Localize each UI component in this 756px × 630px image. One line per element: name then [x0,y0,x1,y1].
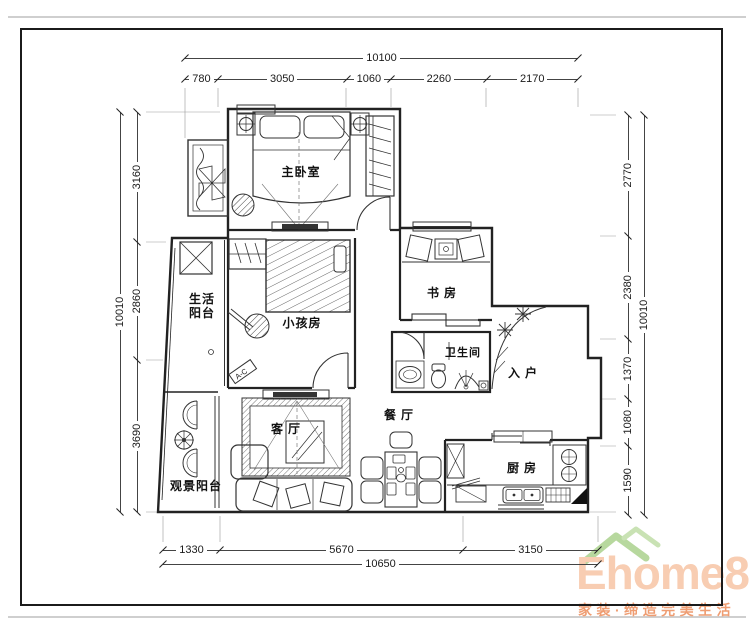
dim-value: 780 [189,73,213,85]
dim-value: 10100 [363,52,400,64]
room-label-kitchen: 厨房 [507,461,541,475]
sofa [236,478,352,511]
room-label-master-bedroom: 主卧室 [281,165,320,179]
bay-window [188,140,228,216]
dim-value: 1060 [354,73,384,85]
toilet [432,370,446,388]
bay-plant [199,166,225,200]
ac-label: A-C [233,366,249,381]
floor-drain [479,381,488,390]
dim-left-total: 10010 [113,112,127,512]
dim-value: 3050 [267,73,297,85]
room-label-living-balcony: 生活阳台 [187,292,217,320]
master-door [357,197,390,230]
dim-value: 10010 [638,297,650,334]
dim-value: 2260 [424,73,454,85]
sink [399,367,421,383]
cushion [406,235,432,261]
room-label-dining: 餐厅 [384,408,418,422]
plant [232,194,254,216]
picture-frame [435,239,457,259]
dining-set [361,432,441,507]
kids-pillow [334,246,346,272]
shower [455,376,479,389]
kids-plant [245,314,269,338]
dim-value: 1590 [622,465,634,495]
room-label-entrance: 入户 [508,366,542,380]
living-tv [273,392,317,397]
dim-right-total: 10010 [637,115,651,515]
sofa-pillow [253,481,279,507]
room-label-bathroom: 卫生间 [445,346,481,360]
corner-plants [494,306,531,373]
dim-bottom-segments: 1330 5670 3150 [163,543,598,557]
pillow [260,116,300,138]
room-label-kids-room: 小孩房 [282,316,321,330]
room-label-living-room: 客厅 [271,422,305,436]
dim-value: 2860 [131,286,143,316]
chair [419,457,441,479]
dining-table [385,452,417,507]
dim-right-segments: 2770 2380 1370 1080 1590 [621,115,635,515]
place-settings [387,455,415,495]
kitchen-sliding-door [492,433,550,446]
rug [242,398,350,476]
dim-top-total: 10100 [185,51,578,65]
corner-counter [571,488,587,504]
dim-bottom-total: 10650 [163,557,598,571]
room-label-view-balcony: 观景阳台 [170,479,222,493]
dim-value: 2770 [622,160,634,190]
entry-threshold [498,505,544,509]
dim-value: 1080 [622,407,634,437]
dim-value: 1330 [176,544,206,556]
ac-unit: A-C [229,360,257,384]
dim-value: 2170 [517,73,547,85]
dim-left-segments: 3160 2860 3690 [130,112,144,512]
study-furniture [402,235,490,262]
dim-value: 3160 [131,162,143,192]
bath-door [397,332,424,359]
kids-door [313,353,348,388]
view-balcony-furniture [174,401,197,477]
sofa-pillow [320,482,344,506]
dim-value: 1370 [622,354,634,384]
dim-value: 3150 [515,544,545,556]
dim-value: 5670 [326,544,356,556]
chair [361,481,383,503]
dim-value: 3690 [131,421,143,451]
tv [282,224,318,229]
vanity [396,361,424,388]
dim-top-segments: 780 3050 1060 2260 2170 [185,72,578,86]
chair [419,481,441,503]
dim-value: 2380 [622,272,634,302]
rug-border [242,398,350,476]
stove [553,445,586,485]
chair [390,432,412,448]
sofa-pillow [286,484,310,508]
dim-value: 10650 [362,558,399,570]
cushion [458,235,484,261]
floor-plan-page: Ehome8 家装·缔造完美生活 [0,0,756,630]
curtain [197,148,204,210]
dim-value: 10010 [114,294,126,331]
study-sliding-door [412,314,480,326]
chair [361,457,383,479]
room-label-study: 书房 [427,286,461,300]
pillow [304,116,344,138]
